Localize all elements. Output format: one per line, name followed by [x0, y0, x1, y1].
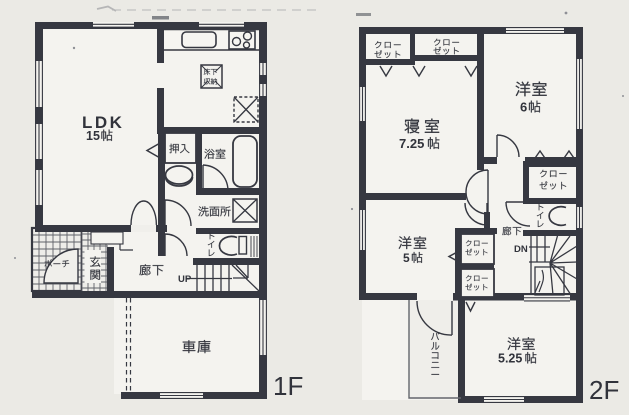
svg-text:UP: UP: [178, 274, 192, 285]
svg-text:7.25: 7.25: [399, 136, 424, 151]
svg-text:15: 15: [86, 129, 100, 143]
svg-text:DN: DN: [514, 244, 528, 255]
svg-text:6: 6: [520, 100, 527, 115]
svg-text:5: 5: [403, 251, 410, 265]
svg-text:1F: 1F: [273, 371, 303, 401]
svg-text:5.25: 5.25: [498, 352, 522, 366]
svg-text:2F: 2F: [589, 375, 619, 405]
